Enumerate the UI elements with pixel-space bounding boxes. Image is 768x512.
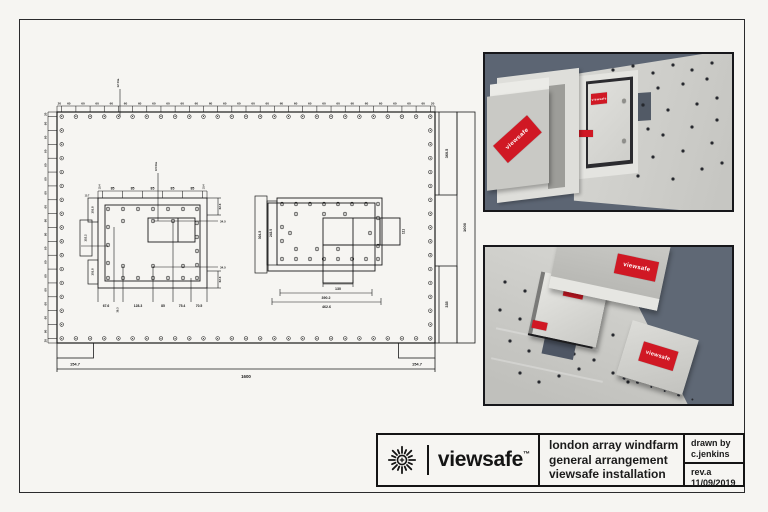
bolt-hole-center bbox=[430, 130, 431, 131]
dim-pa-left-0: 15.7 bbox=[85, 195, 90, 198]
bolt-hole-center bbox=[107, 226, 108, 227]
viewsafe-label-text: viewsafe bbox=[623, 263, 651, 275]
bolt-dot bbox=[691, 68, 694, 71]
bolt-hole-center bbox=[289, 232, 290, 233]
dim-label: 85 bbox=[131, 186, 135, 190]
bolt-hole-center bbox=[122, 208, 123, 209]
dim-label: 60 bbox=[43, 260, 47, 264]
trademark-symbol: ™ bbox=[523, 451, 530, 458]
bolt-hole-center bbox=[274, 116, 275, 117]
bolt-dot bbox=[558, 374, 561, 377]
bolt-hole-center bbox=[146, 338, 147, 339]
bolt-dot bbox=[671, 63, 674, 66]
bolt-hole-center bbox=[137, 277, 138, 278]
bolt-dot bbox=[642, 104, 645, 107]
bolt-dot bbox=[498, 308, 501, 311]
viewsafe-label: viewsafe bbox=[494, 115, 543, 163]
dim-label: 20 bbox=[431, 102, 435, 106]
bottom-dim-boxes bbox=[57, 343, 435, 372]
dim-label: 60 bbox=[421, 102, 425, 106]
bolt-dot bbox=[612, 333, 615, 336]
bolt-dot bbox=[528, 349, 531, 352]
bolt-dot bbox=[716, 118, 719, 121]
bolt-dot bbox=[656, 87, 659, 90]
bolt-hole-center bbox=[365, 258, 366, 259]
bolt-hole-center bbox=[122, 265, 123, 266]
project-line: viewsafe installation bbox=[549, 467, 674, 482]
render1-enclosure-front: viewsafe bbox=[487, 89, 549, 190]
bolt-hole-center bbox=[365, 203, 366, 204]
revision-value: rev.a bbox=[691, 467, 737, 478]
dim-12dia: 12 Dia bbox=[116, 78, 120, 87]
bolt-hole-center bbox=[430, 282, 431, 283]
sun-ray bbox=[398, 467, 399, 470]
dim-label: 85 bbox=[111, 186, 115, 190]
dim-label: 60 bbox=[43, 232, 47, 236]
dim-label: 60 bbox=[43, 122, 47, 126]
dim-label: 20 bbox=[43, 112, 47, 116]
bolt-dot bbox=[681, 82, 684, 85]
dim-label: 60 bbox=[43, 205, 47, 209]
dim-right-top: 360.5 bbox=[445, 149, 449, 159]
dim-label: 60 bbox=[43, 246, 47, 250]
bolt-hole-center bbox=[245, 338, 246, 339]
bolt-hole-center bbox=[61, 199, 62, 200]
bolt-hole-center bbox=[401, 338, 402, 339]
bolt-hole-center bbox=[430, 199, 431, 200]
bolt-hole-center bbox=[302, 116, 303, 117]
dim-label: 60 bbox=[379, 102, 383, 106]
bolt-hole-center bbox=[160, 338, 161, 339]
bolt-hole-center bbox=[331, 338, 332, 339]
bolt-hole-center bbox=[61, 282, 62, 283]
sun-ray bbox=[393, 465, 397, 469]
bolt-hole-center bbox=[302, 338, 303, 339]
sun-ray bbox=[409, 463, 412, 464]
dim-label: 60 bbox=[280, 102, 284, 106]
logo: viewsafe™ bbox=[378, 435, 538, 485]
bolt-dot bbox=[691, 126, 694, 129]
bolt-hole-center bbox=[377, 245, 378, 246]
bolt-dot bbox=[661, 134, 664, 137]
bolt-hole-center bbox=[182, 265, 183, 266]
bolt-hole-center bbox=[316, 116, 317, 117]
dim-label: 60 bbox=[308, 102, 312, 106]
bolt-hole-center bbox=[337, 258, 338, 259]
render1-hatch-door: viewsafe bbox=[586, 76, 633, 168]
brand-text: viewsafe bbox=[438, 448, 523, 471]
bolt-hole-center bbox=[373, 116, 374, 117]
bolt-hole-center bbox=[274, 338, 275, 339]
bolt-hole-center bbox=[430, 241, 431, 242]
dim-label: 60 bbox=[266, 102, 270, 106]
bolt-dot bbox=[577, 368, 580, 371]
bolt-hole-center bbox=[430, 185, 431, 186]
bolt-hole-center bbox=[196, 222, 197, 223]
dim-label: 60 bbox=[81, 102, 85, 106]
bolt-hole-center bbox=[61, 213, 62, 214]
bolt-dot bbox=[696, 102, 699, 105]
dim-pa-left-3: 101.8 bbox=[91, 268, 95, 276]
bolt-hole-center bbox=[323, 203, 324, 204]
drawn-by-value: c.jenkins bbox=[691, 449, 737, 460]
sun-ray bbox=[405, 467, 406, 470]
bolt-hole-center bbox=[189, 338, 190, 339]
bolt-hole-center bbox=[61, 310, 62, 311]
logo-divider bbox=[427, 445, 429, 475]
bolt-hole-center bbox=[152, 208, 153, 209]
dim-label: 60 bbox=[180, 102, 184, 106]
dim-pa-95dia: 9.5 Dia bbox=[154, 162, 158, 171]
dim-label: 60 bbox=[43, 149, 47, 153]
bolt-hole-center bbox=[196, 208, 197, 209]
bolt-hole-center bbox=[231, 116, 232, 117]
viewsafe-label: viewsafe bbox=[614, 254, 659, 282]
bolt-hole-center bbox=[61, 255, 62, 256]
dim-pa-left-1: 101.8 bbox=[91, 206, 95, 214]
bolt-dot bbox=[666, 109, 669, 112]
bolt-hole-center bbox=[430, 338, 431, 339]
project-title: london array windfarm general arrangemen… bbox=[538, 435, 683, 485]
bolt-hole-center bbox=[61, 185, 62, 186]
bolt-dot bbox=[592, 359, 595, 362]
bolt-hole-center bbox=[377, 217, 378, 218]
dim-label: 60 bbox=[95, 102, 99, 106]
dim-label: 60 bbox=[336, 102, 340, 106]
bolt-hole-center bbox=[281, 258, 282, 259]
bolt-hole-center bbox=[107, 277, 108, 278]
bolt-hole-center bbox=[182, 277, 183, 278]
bolt-hole-center bbox=[61, 144, 62, 145]
bolt-dot bbox=[711, 62, 714, 65]
bolt-hole-center bbox=[281, 203, 282, 204]
dim-pb-bottom-0: 130 bbox=[335, 287, 341, 291]
dim-label: 60 bbox=[43, 219, 47, 223]
dim-label: 60 bbox=[365, 102, 369, 106]
bolt-hole-center bbox=[295, 203, 296, 204]
bolt-hole-center bbox=[175, 116, 176, 117]
bolt-hole-center bbox=[61, 338, 62, 339]
bolt-hole-center bbox=[430, 269, 431, 270]
dim-label: 85 bbox=[190, 186, 194, 190]
dim-label: 60 bbox=[43, 329, 47, 333]
bolt-hole-center bbox=[295, 213, 296, 214]
dim-pb-left-0: 304.5 bbox=[258, 231, 262, 240]
drawn-by-cell: drawn by c.jenkins bbox=[685, 435, 743, 464]
bolt-hole-center bbox=[359, 116, 360, 117]
bolt-hole-center bbox=[132, 116, 133, 117]
bolt-hole-center bbox=[387, 338, 388, 339]
bolt-hole-center bbox=[377, 203, 378, 204]
bolt-hole-center bbox=[281, 226, 282, 227]
dim-label: 60 bbox=[138, 102, 142, 106]
bolt-hole-center bbox=[430, 158, 431, 159]
dim-label: 60 bbox=[152, 102, 156, 106]
bolt-hole-center bbox=[245, 116, 246, 117]
viewsafe-label: viewsafe bbox=[638, 341, 678, 371]
bolt-hole-center bbox=[61, 158, 62, 159]
bolt-hole-center bbox=[217, 338, 218, 339]
bolt-dot bbox=[503, 280, 506, 283]
panel-b-outline bbox=[255, 196, 400, 305]
bolt-hole-center bbox=[160, 116, 161, 117]
dim-label: 60 bbox=[351, 102, 355, 106]
bolt-dot bbox=[518, 318, 521, 321]
bolt-dot bbox=[651, 71, 654, 74]
revision-cell: rev.a 11/09/2019 bbox=[685, 464, 743, 491]
dim-label: 60 bbox=[43, 288, 47, 292]
dim-label: 60 bbox=[43, 274, 47, 278]
dim-label: 60 bbox=[223, 102, 227, 106]
bolt-dot bbox=[671, 177, 674, 180]
dim-label: 85 bbox=[151, 186, 155, 190]
dim-label: 60 bbox=[237, 102, 241, 106]
bolt-hole-center bbox=[75, 338, 76, 339]
bolt-hole-center bbox=[323, 213, 324, 214]
brand-wordmark: viewsafe™ bbox=[438, 448, 530, 472]
sun-ray bbox=[392, 456, 395, 457]
dim-bottom-overall: 1600 bbox=[241, 374, 251, 379]
dim-pa-right-2: 34.5 bbox=[220, 265, 226, 269]
drawing-sheet: 12 Dia bbox=[0, 0, 768, 512]
dim-pb-bottom-1: 390.2 bbox=[322, 296, 331, 300]
bolt-hole-center bbox=[430, 255, 431, 256]
drawn-by-label: drawn by bbox=[691, 438, 737, 449]
bolt-hole-center bbox=[122, 277, 123, 278]
dim-label: 60 bbox=[43, 135, 47, 139]
sun-ray bbox=[393, 451, 397, 455]
bolt-hole-center bbox=[90, 116, 91, 117]
bolt-hole-center bbox=[152, 220, 153, 221]
bolt-hole-center bbox=[316, 248, 317, 249]
bolt-hole-center bbox=[430, 324, 431, 325]
bolt-hole-center bbox=[61, 116, 62, 117]
dim-label: 20 bbox=[58, 102, 62, 106]
dim-label: 60 bbox=[43, 316, 47, 320]
bolt-hole-center bbox=[288, 338, 289, 339]
render1-hatch-door-face: viewsafe bbox=[588, 80, 630, 164]
bolt-hole-center bbox=[344, 213, 345, 214]
bolt-hole-center bbox=[203, 338, 204, 339]
bolt-hole-center bbox=[104, 338, 105, 339]
bolt-hole-center bbox=[189, 116, 190, 117]
bolt-hole-center bbox=[430, 310, 431, 311]
bolt-hole-center bbox=[61, 172, 62, 173]
bolt-dot bbox=[647, 127, 650, 130]
dim-pa-bottom-2: 128.3 bbox=[134, 304, 143, 308]
bolt-hole-center bbox=[107, 208, 108, 209]
bolt-dot bbox=[538, 381, 541, 384]
right-dim-boxes bbox=[435, 112, 475, 343]
dim-label: 20 bbox=[43, 339, 47, 343]
bolt-hole-center bbox=[369, 232, 370, 233]
dim-pb-bottom-2: 462.6 bbox=[322, 305, 331, 309]
bolt-hole-center bbox=[430, 144, 431, 145]
viewsafe-label-text: viewsafe bbox=[506, 127, 531, 151]
bolt-hole-center bbox=[104, 116, 105, 117]
dim-label: 19.4 bbox=[98, 184, 101, 189]
dim-label: 19.4 bbox=[203, 184, 206, 189]
bolt-hole-center bbox=[217, 116, 218, 117]
project-line: general arrangement bbox=[549, 453, 674, 468]
bolt-hole-center bbox=[196, 277, 197, 278]
dim-label: 60 bbox=[110, 102, 114, 106]
bolt-dot bbox=[716, 96, 719, 99]
viewsafe-tag bbox=[579, 130, 593, 137]
bolt-hole-center bbox=[416, 116, 417, 117]
dim-right-bottom: 335 bbox=[445, 301, 449, 307]
bolt-hole-center bbox=[295, 248, 296, 249]
bolt-hole-center bbox=[196, 264, 197, 265]
dim-bottom-left: 154.7 bbox=[70, 362, 81, 367]
bolt-hole-center bbox=[309, 203, 310, 204]
bolt-hole-center bbox=[430, 213, 431, 214]
bolt-hole-center bbox=[172, 220, 173, 221]
bolt-hole-center bbox=[196, 250, 197, 251]
bolt-hole-center bbox=[146, 116, 147, 117]
dim-pa-bottom-4: 75.4 bbox=[179, 304, 186, 308]
bolt-hole-center bbox=[75, 116, 76, 117]
bolt-hole-center bbox=[281, 240, 282, 241]
dim-pa-bottom-1: 39.3 bbox=[116, 307, 120, 313]
bolt-hole-center bbox=[118, 116, 119, 117]
bolt-hole-center bbox=[61, 269, 62, 270]
bolt-hole-center bbox=[430, 227, 431, 228]
bolt-hole-center bbox=[345, 116, 346, 117]
bolt-hole-center bbox=[430, 296, 431, 297]
revision-date: 11/09/2019 bbox=[691, 478, 737, 489]
dim-label: 60 bbox=[43, 191, 47, 195]
dim-right-overall: 1000 bbox=[462, 222, 467, 232]
dim-pb-left-1: 243.5 bbox=[269, 229, 273, 237]
bolt-hole-center bbox=[295, 258, 296, 259]
bolt-dot bbox=[721, 162, 724, 165]
bolt-hole-center bbox=[90, 338, 91, 339]
viewsafe-label-text: viewsafe bbox=[592, 96, 607, 102]
bolt-hole-center bbox=[337, 248, 338, 249]
render-exploded-view: viewsafe viewsafe bbox=[483, 52, 734, 212]
bolt-hole-center bbox=[137, 208, 138, 209]
viewsafe-label-text: viewsafe bbox=[645, 349, 671, 362]
dim-label: 60 bbox=[166, 102, 170, 106]
bolt-hole-center bbox=[61, 241, 62, 242]
viewsafe-label: viewsafe bbox=[591, 92, 607, 105]
bolt-dot bbox=[651, 155, 654, 158]
viewsafe-sun-icon bbox=[386, 444, 418, 476]
sun-ray bbox=[407, 451, 411, 455]
dim-label: 60 bbox=[124, 102, 128, 106]
bolt-hole-center bbox=[387, 116, 388, 117]
bolt-hole-center bbox=[182, 208, 183, 209]
bolt-dot bbox=[632, 65, 635, 68]
bolt-dot bbox=[612, 68, 615, 71]
bolt-hole-center bbox=[260, 338, 261, 339]
bolt-hole-center bbox=[152, 277, 153, 278]
bolt-hole-center bbox=[377, 258, 378, 259]
general-arrangement-drawing: 12 Dia bbox=[40, 75, 480, 405]
dim-label: 60 bbox=[294, 102, 298, 106]
dim-pa-bottom-0: 67.6 bbox=[103, 304, 110, 308]
sun-ray bbox=[392, 463, 395, 464]
dim-label: 60 bbox=[322, 102, 326, 106]
bolt-dot bbox=[612, 371, 615, 374]
dim-label: 85 bbox=[171, 186, 175, 190]
dim-pa-right-3: 62.6 bbox=[218, 276, 222, 282]
bolt-hole-center bbox=[203, 116, 204, 117]
project-line: london array windfarm bbox=[549, 438, 674, 453]
bolt-hole-center bbox=[122, 220, 123, 221]
latch-knob-icon bbox=[622, 138, 626, 142]
dim-pa-right-1: 34.5 bbox=[220, 219, 226, 223]
bolt-hole-center bbox=[351, 203, 352, 204]
bolt-hole-center bbox=[107, 262, 108, 263]
bolt-hole-center bbox=[430, 172, 431, 173]
bolt-hole-center bbox=[359, 338, 360, 339]
bolt-hole-center bbox=[167, 208, 168, 209]
bolt-hole-center bbox=[316, 338, 317, 339]
bolt-hole-center bbox=[401, 116, 402, 117]
dim-bottom-right: 154.7 bbox=[412, 362, 423, 367]
bolt-hole-center bbox=[309, 258, 310, 259]
dim-pa-left-2: 152.2 bbox=[84, 234, 88, 242]
bolt-dot bbox=[701, 168, 704, 171]
bolt-dot bbox=[518, 371, 521, 374]
render-installed-view: viewsafe viewsafe bbox=[483, 245, 734, 406]
bolt-hole-center bbox=[118, 338, 119, 339]
bolt-dot bbox=[706, 77, 709, 80]
dim-label: 60 bbox=[43, 163, 47, 167]
bolt-hole-center bbox=[416, 338, 417, 339]
dim-label: 60 bbox=[251, 102, 255, 106]
bolt-hole-center bbox=[175, 338, 176, 339]
dim-pa-bottom-3: 85 bbox=[161, 304, 165, 308]
dim-label: 60 bbox=[43, 177, 47, 181]
dim-label: 60 bbox=[67, 102, 71, 106]
bolt-hole-center bbox=[288, 116, 289, 117]
bolt-hole-center bbox=[107, 244, 108, 245]
bolt-hole-center bbox=[152, 265, 153, 266]
bolt-hole-center bbox=[231, 338, 232, 339]
dim-label: 60 bbox=[407, 102, 411, 106]
dim-label: 60 bbox=[43, 302, 47, 306]
sun-ray bbox=[405, 450, 406, 453]
bolt-hole-center bbox=[167, 277, 168, 278]
bolt-hole-center bbox=[61, 296, 62, 297]
bolt-dot bbox=[637, 174, 640, 177]
bolt-dot bbox=[523, 289, 526, 292]
title-block: viewsafe™ london array windfarm general … bbox=[376, 433, 745, 487]
bolt-hole-center bbox=[61, 227, 62, 228]
bolt-hole-center bbox=[430, 116, 431, 117]
bolt-hole-center bbox=[61, 324, 62, 325]
bolt-hole-center bbox=[61, 130, 62, 131]
bolt-hole-center bbox=[337, 203, 338, 204]
latch-knob-icon bbox=[622, 98, 626, 102]
bolt-dot bbox=[508, 340, 511, 343]
sun-ray bbox=[407, 465, 411, 469]
bolt-hole-center bbox=[196, 236, 197, 237]
bolt-hole-center bbox=[345, 338, 346, 339]
dim-label: 60 bbox=[209, 102, 213, 106]
bolt-hole-center bbox=[373, 338, 374, 339]
bolt-hole-center bbox=[132, 338, 133, 339]
bolt-dot bbox=[711, 141, 714, 144]
bolt-hole-center bbox=[351, 258, 352, 259]
dim-label: 60 bbox=[393, 102, 397, 106]
dim-pa-right-0: 62.6 bbox=[218, 203, 222, 209]
panel-a-outline bbox=[80, 173, 221, 302]
sun-ray bbox=[398, 450, 399, 453]
